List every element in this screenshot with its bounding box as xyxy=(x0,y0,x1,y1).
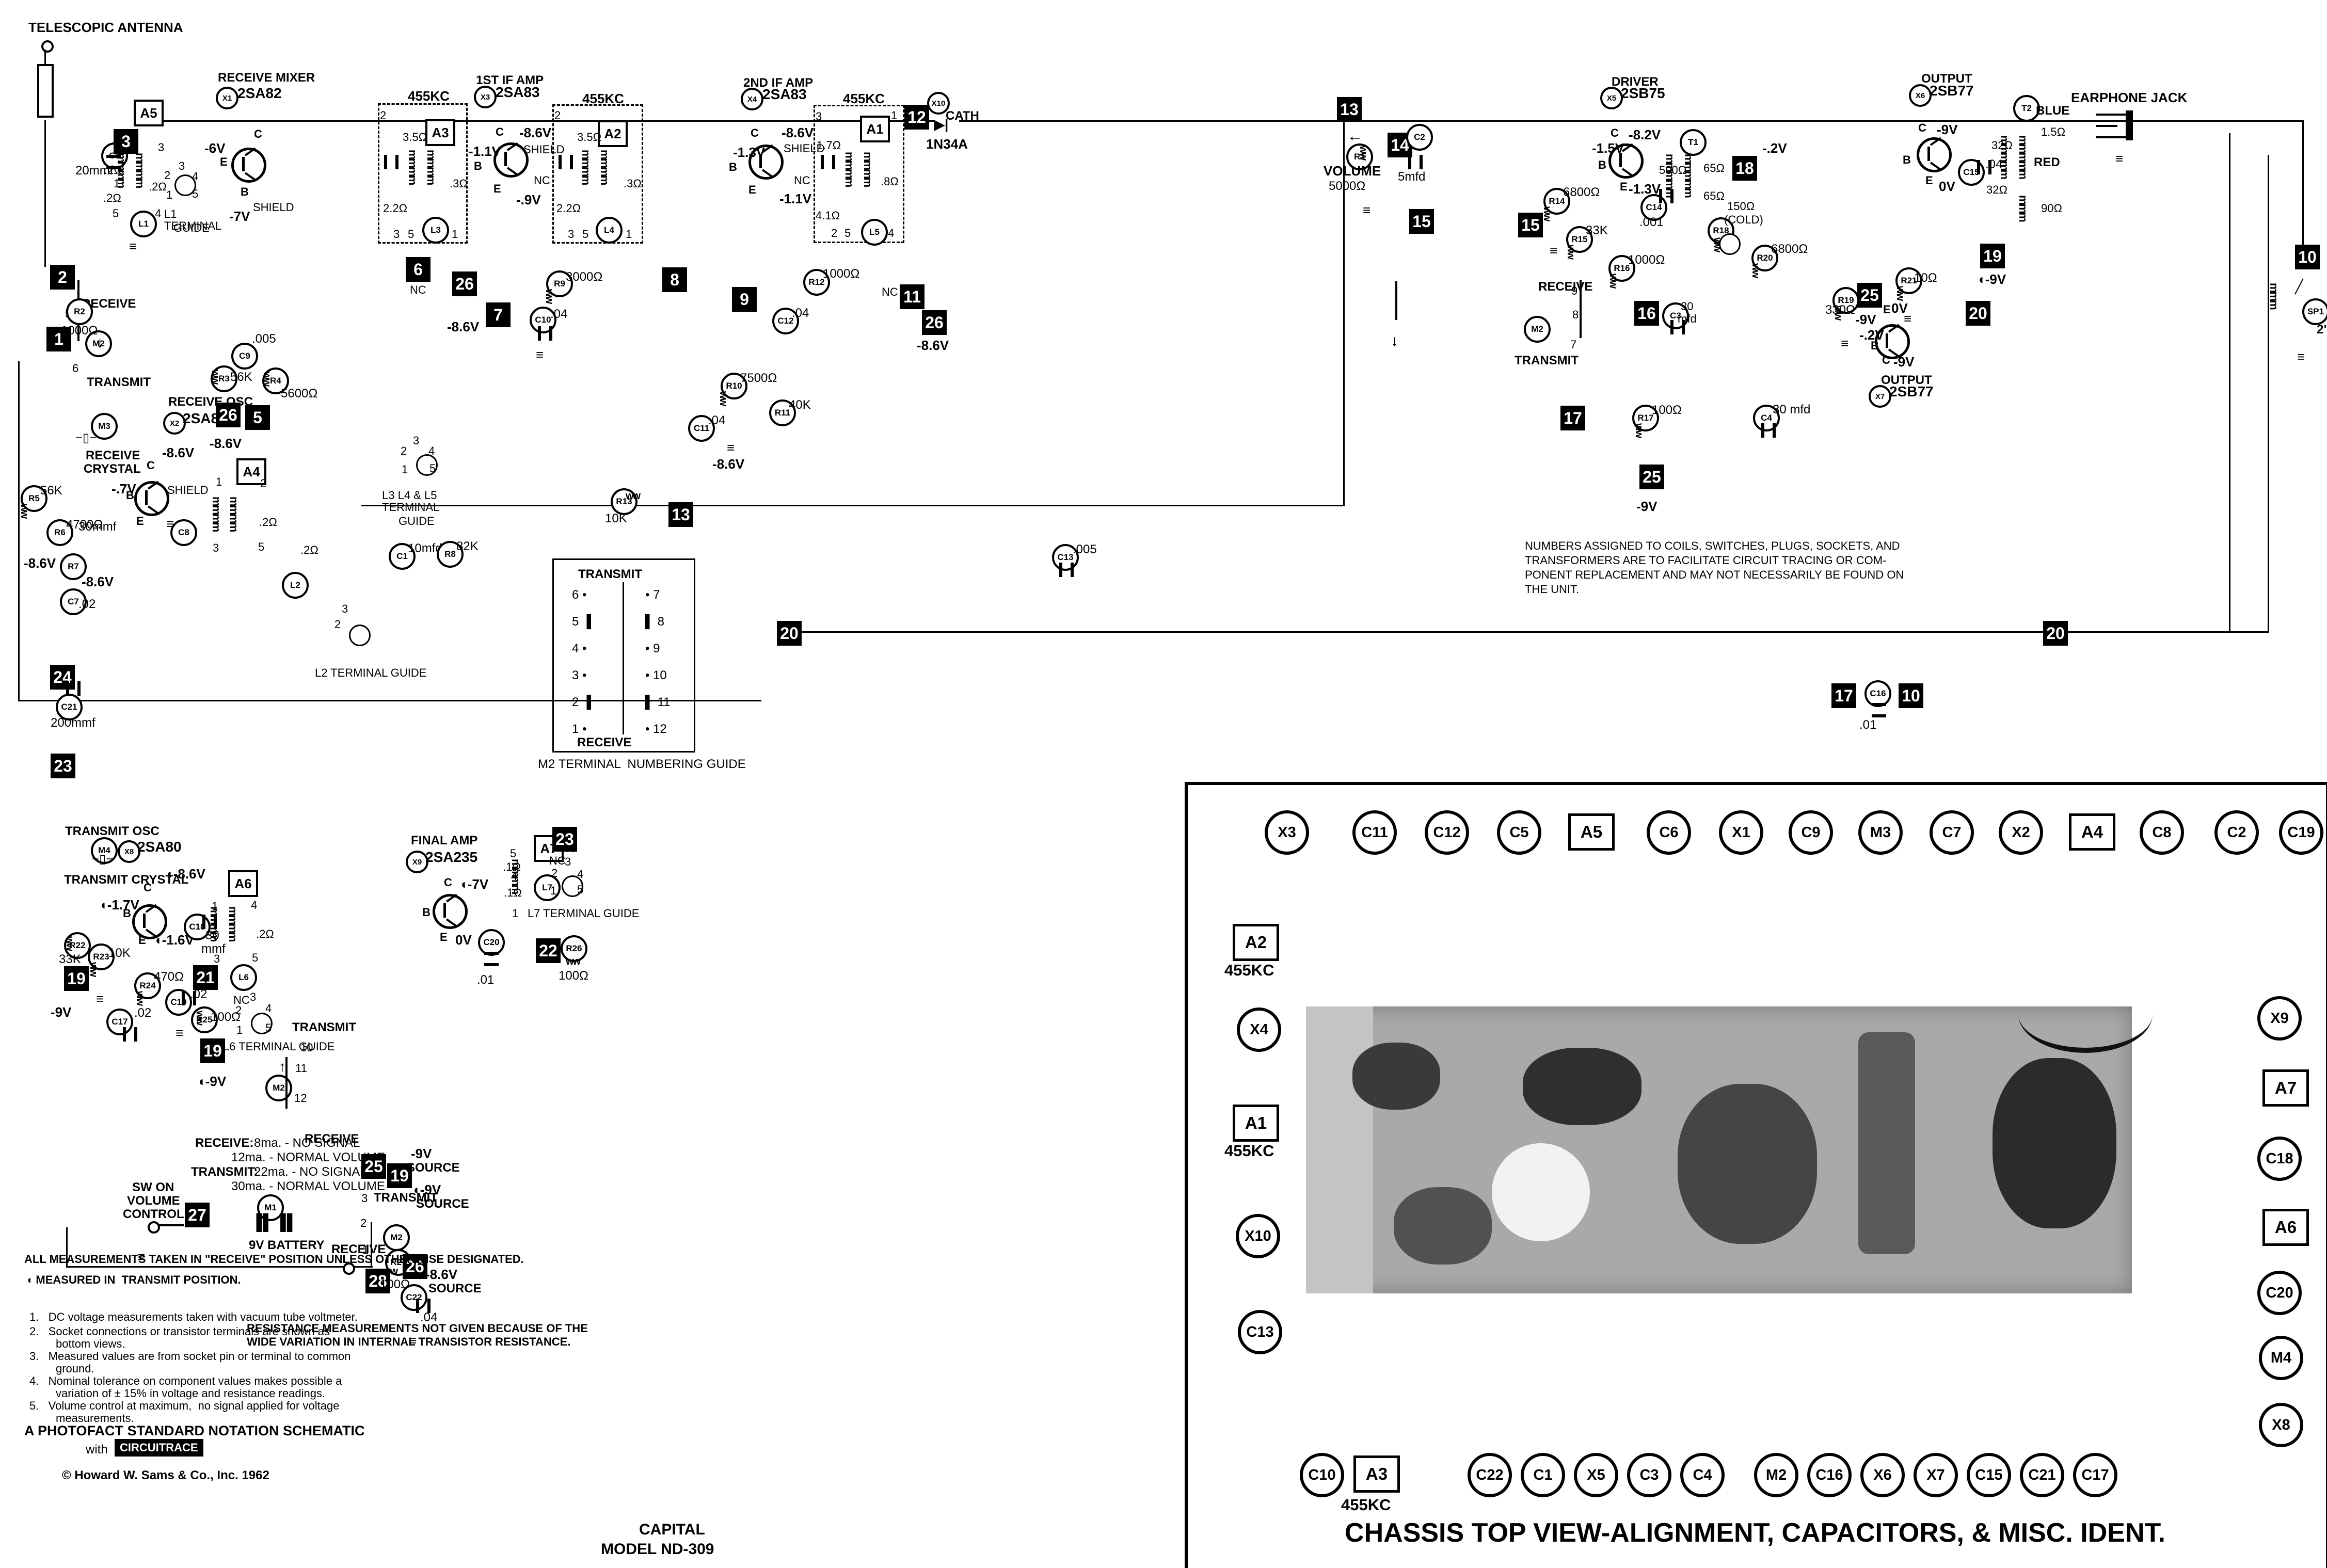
wire-20 xyxy=(37,116,54,118)
label-213: E xyxy=(136,515,144,527)
label-52: 4 xyxy=(192,170,198,182)
photo-component-blob xyxy=(1523,1048,1641,1125)
label-356: 2SB77 xyxy=(1930,83,1974,98)
chassis-callout-A3: A3 xyxy=(1353,1455,1400,1493)
chassis-callout-X3: X3 xyxy=(1265,810,1309,855)
label-205: −▯− xyxy=(75,431,97,444)
label-464: 3 xyxy=(250,991,256,1003)
ground-symbol-48: ≡ xyxy=(129,238,137,254)
label-214: SHIELD xyxy=(167,484,208,496)
label-293: 2SB75 xyxy=(1621,86,1665,101)
chassis-callout-X5: X5 xyxy=(1574,1453,1618,1497)
label-268: 1 xyxy=(402,463,408,475)
label-98: -8.6V xyxy=(447,320,479,334)
chassis-callout-X8: X8 xyxy=(2259,1403,2303,1447)
label-156: .8Ω xyxy=(881,175,899,187)
circuitrace-box-10-353: 10 xyxy=(1899,683,1923,708)
label-62: E xyxy=(220,156,228,168)
label-376: EARPHONE JACK xyxy=(2071,91,2187,105)
chassis-callout-C2: C2 xyxy=(2214,810,2259,855)
wire-2 xyxy=(959,120,2303,122)
component-ref-C9: C9 xyxy=(231,343,258,370)
label-283: 9 xyxy=(1571,285,1577,297)
chassis-callout-C3: C3 xyxy=(1627,1453,1671,1497)
label-127: .04 xyxy=(708,414,725,427)
label-177: .005 xyxy=(1073,543,1097,556)
label-414: 2SA80 xyxy=(137,839,182,854)
label-553: ◖ MEASURED IN TRANSMIT POSITION. xyxy=(26,1274,241,1286)
wire-8 xyxy=(2268,155,2269,632)
model-name: CAPITAL xyxy=(639,1522,705,1538)
circuitrace-box-11-136: 11 xyxy=(900,284,925,309)
label-190: ▌ 8 xyxy=(645,615,664,628)
ground-symbol-389: ≡ xyxy=(1841,335,1848,351)
label-375: 90Ω xyxy=(2041,202,2062,214)
component-ref-SP1: SP1 xyxy=(2302,298,2327,325)
label-197: 1 • xyxy=(572,723,586,735)
label-470: TRANSMIT xyxy=(292,1021,356,1034)
label-169: CATH xyxy=(946,109,979,122)
chassis-photo xyxy=(1306,1006,2132,1293)
coil-winding-113: mmmm xyxy=(579,150,593,184)
circuitrace-box-23-510: 23 xyxy=(552,827,577,852)
photo-light-edge xyxy=(1306,1006,1373,1293)
label-554: 1. DC voltage measurements taken with va… xyxy=(29,1311,358,1323)
label-474: 11 xyxy=(295,1062,307,1074)
capacitor-symbol-344 xyxy=(1761,423,1776,438)
chassis-callout-C15: C15 xyxy=(1967,1453,2011,1497)
label-129: 40K xyxy=(789,398,811,411)
ground-symbol-275: ≡ xyxy=(1363,202,1370,218)
label-458: 3 xyxy=(214,953,220,965)
circuitrace-box-23-261: 23 xyxy=(51,754,75,778)
label-266: 3 xyxy=(413,435,419,446)
label-367: 32Ω xyxy=(1986,184,2007,196)
wire-378 xyxy=(2096,125,2117,127)
label-298: B xyxy=(1598,159,1606,171)
label-284: 8 xyxy=(1572,309,1579,321)
label-152: 455KC xyxy=(843,92,885,106)
label-21: TELESCOPIC ANTENNA xyxy=(28,21,183,35)
label-403: 2SB77 xyxy=(1889,384,1934,399)
chassis-callout-C11: C11 xyxy=(1352,810,1397,855)
label-112: 2.2Ω xyxy=(556,202,581,214)
label-343: 30 mfd xyxy=(1773,403,1810,416)
label-145: B xyxy=(729,161,737,173)
label-528: RECEIVE xyxy=(305,1132,359,1145)
model-number: MODEL ND-309 xyxy=(601,1541,714,1558)
label-530: -9V xyxy=(411,1147,432,1161)
circuitrace-box-7-106: 7 xyxy=(486,302,511,327)
circuitrace-box-21-450: 21 xyxy=(193,965,218,990)
label-38: 3 xyxy=(158,141,164,153)
circuitrace-box-18-320: 18 xyxy=(1732,156,1757,181)
wire-182 xyxy=(552,751,695,753)
label-262: L3 L4 & L5 TERMINAL xyxy=(382,489,470,513)
label-457: 4 xyxy=(251,899,257,911)
label-222: 4700Ω xyxy=(66,518,103,531)
chassis-sublabel-455KC: 455KC xyxy=(1341,1496,1391,1514)
label-74: 2.2Ω xyxy=(383,202,407,214)
component-ref-M2: M2 xyxy=(383,1224,410,1251)
capacitor-symbol-438 xyxy=(123,1027,137,1042)
label-273: 5000Ω xyxy=(1329,180,1365,193)
resistor-symbol-326: ww xyxy=(1711,237,1723,251)
chassis-callout-C20: C20 xyxy=(2257,1271,2302,1315)
transistor-symbol-357 xyxy=(1917,137,1952,172)
label-289: ↓ xyxy=(1391,333,1398,349)
circuitrace-box-13-270: 13 xyxy=(1337,97,1362,122)
label-263: GUIDE xyxy=(399,515,435,527)
label-561: 5. Volume control at maximum, no signal … xyxy=(29,1400,339,1412)
label-391: 10Ω xyxy=(1914,271,1937,284)
component-ref-X4: X4 xyxy=(741,88,763,110)
label-547: -8.6V xyxy=(425,1268,457,1282)
label-85: 2SA83 xyxy=(496,85,540,100)
component-ref-L6: L6 xyxy=(230,964,257,991)
label-64: RECEIVE MIXER xyxy=(218,71,315,84)
component-ref-C8: C8 xyxy=(170,519,197,546)
alignment-point-A5: A5 xyxy=(134,100,164,126)
wire-18 xyxy=(37,64,39,118)
label-72: 3.5Ω xyxy=(403,131,427,143)
ground-symbol-410: ≡ xyxy=(2297,349,2305,365)
coil-winding-247: mmmm xyxy=(227,497,241,531)
ground-symbol-131: ≡ xyxy=(727,440,735,456)
label-211: C xyxy=(147,459,155,471)
label-193: 3 • xyxy=(572,669,586,682)
label-269: 5 xyxy=(429,462,436,474)
label-459: 5 xyxy=(252,952,258,964)
label-295: -1.5V xyxy=(1592,141,1624,155)
circuitrace-box-19-451: 19 xyxy=(200,1038,225,1063)
resistor-symbol-238: ww xyxy=(261,372,273,386)
label-118: 3 xyxy=(568,228,574,240)
label-533: 3 xyxy=(361,1192,368,1204)
label-144: C xyxy=(751,127,759,139)
wire-379 xyxy=(2096,136,2128,138)
label-164: 2 xyxy=(831,227,837,239)
chassis-callout-A6: A6 xyxy=(2262,1209,2309,1246)
label-535: ◖-9V xyxy=(412,1183,441,1197)
label-54: 5 xyxy=(192,188,198,200)
chassis-callout-C21: C21 xyxy=(2020,1453,2064,1497)
coil-winding-46: mmmm xyxy=(133,153,147,187)
label-359: -9V xyxy=(1937,123,1957,137)
wire-16 xyxy=(44,50,46,64)
label-245: 2 xyxy=(260,477,266,489)
label-59: SHIELD xyxy=(253,201,294,213)
resistor-symbol-236: ww xyxy=(209,370,221,383)
chassis-callout-C7: C7 xyxy=(1930,810,1974,855)
chassis-callout-C19: C19 xyxy=(2279,810,2323,855)
label-133: 1000Ω xyxy=(823,267,859,280)
chassis-callout-C1: C1 xyxy=(1521,1453,1565,1497)
label-347: PONENT REPLACEMENT AND MAY NOT NECESSARI… xyxy=(1525,569,1904,581)
label-361: E xyxy=(1925,174,1933,186)
label-272: VOLUME xyxy=(1324,164,1381,178)
chassis-callout-X2: X2 xyxy=(1999,810,2043,855)
label-206: RECEIVE xyxy=(86,449,140,462)
label-372: 1.5Ω xyxy=(2041,126,2065,138)
label-267: 4 xyxy=(428,445,435,457)
ground-symbol-430: ≡ xyxy=(96,991,104,1007)
label-425: 33K xyxy=(59,953,81,966)
wire-287 xyxy=(1580,280,1582,338)
chassis-callout-C16: C16 xyxy=(1807,1453,1852,1497)
label-189: 5 ▐ xyxy=(572,615,591,628)
label-187: 6 • xyxy=(572,588,586,601)
label-477: FINAL AMP xyxy=(411,834,477,847)
label-192: • 9 xyxy=(645,642,660,655)
label-352: .01 xyxy=(1859,718,1876,731)
coil-winding-75: mmmm xyxy=(406,150,419,184)
photo-transformer-blob xyxy=(1993,1058,2116,1228)
label-255: 3 xyxy=(342,603,348,615)
label-328: 6800Ω xyxy=(1771,243,1808,255)
label-41: 4 xyxy=(155,207,161,219)
diode-symbol-170: ▶| xyxy=(934,117,948,133)
label-312: .001 xyxy=(1639,216,1664,229)
label-248: .2Ω xyxy=(259,516,277,528)
label-483: E xyxy=(440,931,448,943)
ground-symbol-304: ≡ xyxy=(1550,243,1557,259)
component-ref-L5: L5 xyxy=(861,219,888,246)
label-151: -1.1V xyxy=(779,192,811,206)
label-321: -.2V xyxy=(1762,141,1787,155)
label-111: .3Ω xyxy=(624,178,642,189)
label-491: .1Ω xyxy=(504,887,522,899)
chassis-callout-X1: X1 xyxy=(1719,810,1763,855)
resistor-symbol-429: ww xyxy=(87,962,99,976)
label-482: ◖-7V xyxy=(459,877,488,891)
label-407: ╱ xyxy=(2295,280,2303,294)
label-63: B xyxy=(241,186,249,198)
circuitrace-box-17-349: 17 xyxy=(1831,683,1856,708)
label-297: -8.2V xyxy=(1629,128,1661,142)
label-323: 150Ω xyxy=(1727,200,1755,212)
circuitrace-box-15-281: 15 xyxy=(1409,209,1434,234)
chassis-callout-C10: C10 xyxy=(1300,1453,1344,1497)
capacitor-symbol-78 xyxy=(384,155,399,169)
resistor-symbol-426: ww xyxy=(63,936,75,950)
photo-speaker-hole xyxy=(1492,1143,1590,1241)
wire-19 xyxy=(52,64,54,118)
component-ref-L3: L3 xyxy=(422,217,449,244)
copyright: © Howard W. Sams & Co., Inc. 1962 xyxy=(62,1469,269,1482)
chassis-callout-A7: A7 xyxy=(2262,1069,2309,1107)
component-ref-X3: X3 xyxy=(474,86,497,108)
label-345: NUMBERS ASSIGNED TO COILS, SWITCHES, PLU… xyxy=(1525,540,1900,552)
label-465: 2 xyxy=(235,1004,242,1016)
wire-181 xyxy=(552,558,695,560)
label-537: 2 xyxy=(360,1217,366,1229)
circuitrace-box-8-121: 8 xyxy=(662,267,687,292)
label-481: C xyxy=(444,876,452,888)
label-30: 6 xyxy=(72,362,78,374)
label-208: -8.6V xyxy=(162,446,194,460)
circuitrace-box-16-331: 16 xyxy=(1634,301,1659,326)
wire-377 xyxy=(2096,114,2128,116)
resistor-symbol-339: ww xyxy=(1633,423,1645,437)
label-452: ◖-9V xyxy=(197,1075,226,1089)
component-ref-C2: C2 xyxy=(1406,124,1433,151)
chassis-callout-C8: C8 xyxy=(2140,810,2184,855)
circuitrace-box-12-167: 12 xyxy=(904,105,929,130)
junction-15 xyxy=(41,40,54,53)
alignment-point-A2: A2 xyxy=(598,120,628,147)
label-383: -9V xyxy=(1855,313,1876,327)
chassis-callout-C9: C9 xyxy=(1789,810,1833,855)
wire-13 xyxy=(67,1266,373,1268)
label-120: 1 xyxy=(626,228,632,240)
label-422: E xyxy=(138,934,146,946)
label-471: 10 xyxy=(300,1042,313,1053)
label-511: RECEIVE: xyxy=(195,1137,253,1149)
resistor-symbol-435: ww xyxy=(134,991,146,1005)
label-227: -8.6V xyxy=(82,575,114,589)
photo-component-blob xyxy=(1352,1043,1440,1110)
label-173: 10K xyxy=(605,512,627,525)
label-79: 2 xyxy=(380,109,386,121)
label-476: ↑ xyxy=(279,1059,286,1074)
resistor-symbol-329: ww xyxy=(1749,263,1761,277)
circuitrace-box-20-180: 20 xyxy=(2043,621,2068,646)
circuitrace-badge: CIRCUITRACE xyxy=(115,1439,203,1457)
label-186: TRANSMIT xyxy=(578,568,642,581)
label-324: (COLD) xyxy=(1724,214,1763,226)
label-434: 470Ω xyxy=(154,970,184,983)
wire-11 xyxy=(44,120,46,267)
label-514: TRANSMIT: xyxy=(191,1165,258,1178)
label-468: 5 xyxy=(265,1022,272,1034)
resistor-symbol-274: ww xyxy=(1357,146,1369,159)
capacitor-symbol-178 xyxy=(1059,563,1074,577)
label-500: 1 xyxy=(550,885,556,897)
label-194: • 10 xyxy=(645,669,667,682)
label-256: L2 TERMINAL GUIDE xyxy=(315,667,426,679)
capacitor-symbol-335 xyxy=(1670,320,1685,334)
ground-symbol-381: ≡ xyxy=(2115,151,2123,167)
label-44: .2Ω xyxy=(149,181,167,193)
label-415: −▯− xyxy=(92,853,113,866)
coil-winding-159: mmmm xyxy=(861,152,874,186)
label-338: 100Ω xyxy=(1652,404,1682,417)
label-53: 1 xyxy=(166,189,172,201)
label-147: -1.3V xyxy=(733,146,765,159)
component-ref-X5: X5 xyxy=(1600,87,1623,109)
label-385: ◖-9V xyxy=(1977,273,2006,286)
circuitrace-box-10-405: 10 xyxy=(2295,245,2320,269)
label-242: -8.6V xyxy=(210,437,242,451)
chassis-sublabel-455KC: 455KC xyxy=(1224,1142,1274,1160)
coil-winding-246: mmmm xyxy=(210,497,223,531)
label-87: C xyxy=(496,126,504,138)
label-28: 4 xyxy=(65,279,71,291)
label-420: ◖-1.7V xyxy=(99,898,139,912)
component-ref-R2: R2 xyxy=(66,298,93,325)
chassis-callout-A1: A1 xyxy=(1233,1105,1279,1142)
label-469: L6 TERMINAL GUIDE xyxy=(223,1041,334,1052)
label-369: BLUE xyxy=(2036,104,2069,117)
label-518: VOLUME xyxy=(127,1194,180,1207)
label-212: B xyxy=(126,489,134,501)
label-548: SOURCE xyxy=(428,1282,482,1295)
resistor-symbol-310: ww xyxy=(1607,274,1619,287)
resistor-symbol-545: ww xyxy=(383,1266,397,1277)
chassis-callout-X10: X10 xyxy=(1236,1214,1280,1258)
label-82: 1 xyxy=(452,228,458,240)
label-467: 1 xyxy=(236,1024,243,1036)
label-564: WIDE VARIATION IN INTERNAL TRANSISTOR RE… xyxy=(247,1336,570,1348)
label-56: GUIDE xyxy=(173,222,210,234)
label-93: NC xyxy=(534,174,550,186)
label-317: 500Ω xyxy=(1659,164,1686,176)
circuitrace-box-22-506: 22 xyxy=(536,938,561,963)
label-562: measurements. xyxy=(56,1412,134,1424)
label-150: NC xyxy=(794,174,810,186)
label-502: L7 TERMINAL GUIDE xyxy=(528,907,639,919)
alignment-point-A1: A1 xyxy=(860,116,890,142)
wire-184 xyxy=(694,558,695,753)
label-58: -7V xyxy=(229,210,250,223)
label-558: ground. xyxy=(56,1363,94,1374)
label-560: variation of ± 15% in voltage and resist… xyxy=(56,1387,325,1399)
circuitrace-box-26-138: 26 xyxy=(922,310,947,335)
label-526: 9V BATTERY xyxy=(249,1239,325,1252)
label-556: bottom views. xyxy=(56,1338,125,1350)
label-501: 5 xyxy=(577,884,583,895)
component-ref-M2: M2 xyxy=(1524,316,1551,343)
chassis-callout-A5: A5 xyxy=(1568,813,1615,851)
label-486: 5 xyxy=(510,847,516,859)
label-88: B xyxy=(474,160,482,172)
label-50: 3 xyxy=(179,160,185,172)
wire-185 xyxy=(623,582,624,734)
component-ref-X1: X1 xyxy=(216,87,238,109)
coil-winding-406: mmm xyxy=(2267,283,2281,309)
label-288: TRANSMIT xyxy=(1515,354,1579,367)
label-517: SW ON xyxy=(132,1181,174,1194)
chassis-callout-M3: M3 xyxy=(1858,810,1903,855)
label-163: 1 xyxy=(891,109,897,121)
chassis-callout-C4: C4 xyxy=(1680,1453,1725,1497)
photo-component-blob xyxy=(1394,1187,1492,1265)
label-259: 200mmf xyxy=(51,716,95,729)
chassis-callout-X7: X7 xyxy=(1914,1453,1958,1497)
label-282: RECEIVE xyxy=(1538,280,1592,293)
label-531: SOURCE xyxy=(407,1161,460,1174)
coil-winding-371: mmmmm xyxy=(2016,135,2030,178)
wire-4 xyxy=(361,505,1345,506)
circuitrace-box-27-520: 27 xyxy=(185,1203,210,1227)
label-57: -6V xyxy=(204,141,225,155)
label-119: 5 xyxy=(582,228,588,240)
label-81: 5 xyxy=(408,228,414,240)
label-299: E xyxy=(1620,181,1628,193)
label-485: B xyxy=(422,906,431,918)
label-94: -.9V xyxy=(516,193,541,207)
resistor-symbol-392: ww xyxy=(1894,286,1906,300)
label-515: 22ma. - NO SIGNAL xyxy=(254,1165,367,1178)
label-73: .3Ω xyxy=(450,178,468,189)
chassis-callout-X9: X9 xyxy=(2257,996,2302,1041)
wire-3 xyxy=(2302,120,2304,249)
wire-9 xyxy=(18,361,20,701)
label-117: 2 xyxy=(554,109,561,121)
label-103: .04 xyxy=(550,308,567,321)
capacitor-symbol-116 xyxy=(559,155,573,169)
